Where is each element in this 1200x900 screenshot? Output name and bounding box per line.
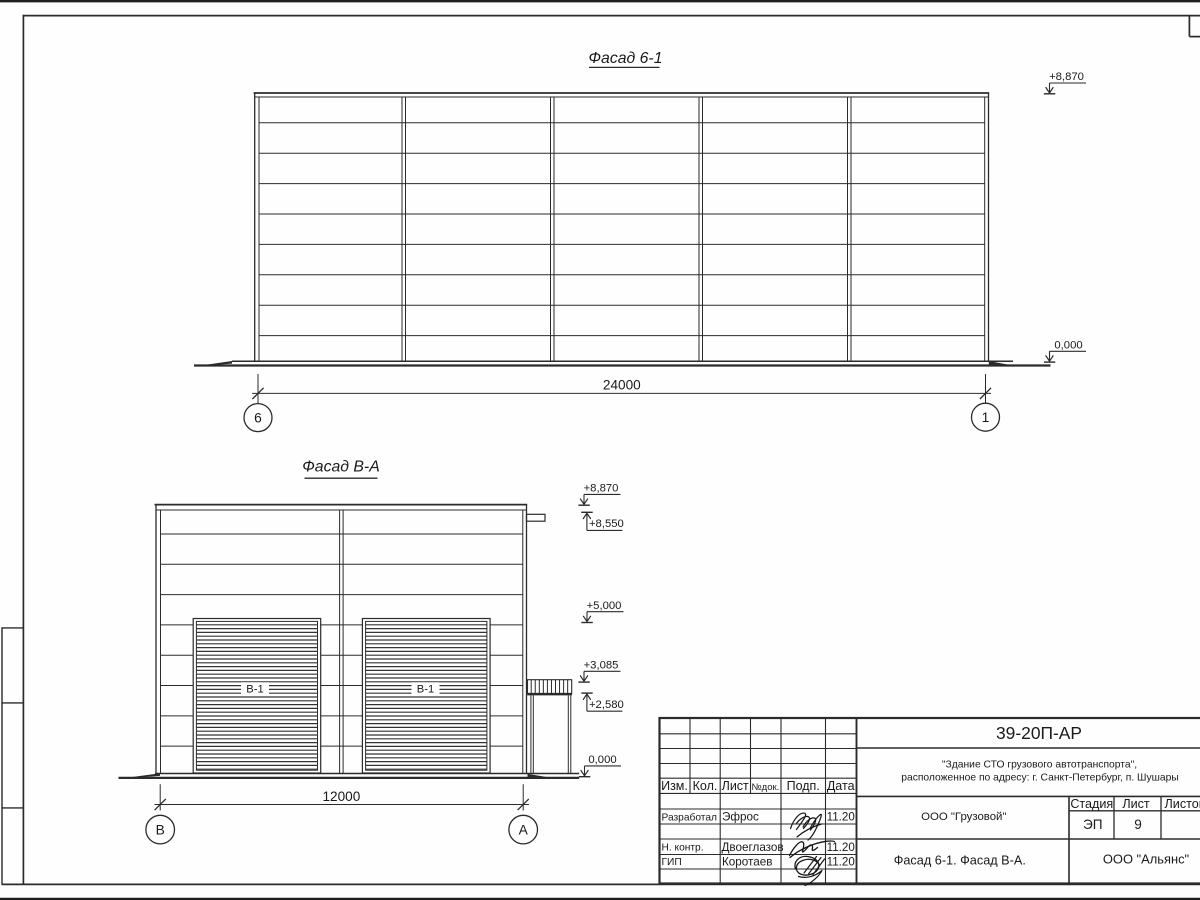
svg-text:Фасад 6-1: Фасад 6-1 — [589, 50, 663, 67]
svg-text:В-1: В-1 — [417, 683, 434, 695]
svg-text:Изм.: Изм. — [661, 779, 688, 793]
svg-text:+3,085: +3,085 — [584, 660, 619, 672]
svg-text:Коротаев: Коротаев — [722, 855, 772, 868]
svg-text:6: 6 — [254, 411, 262, 426]
svg-text:ООО "Грузовой": ООО "Грузовой" — [921, 811, 1006, 823]
svg-text:Подп.: Подп. — [787, 779, 820, 793]
svg-text:Дата: Дата — [827, 779, 855, 793]
svg-text:24000: 24000 — [603, 378, 641, 393]
svg-text:А: А — [519, 823, 529, 838]
svg-text:1: 1 — [982, 410, 990, 425]
svg-text:+8,550: +8,550 — [589, 518, 624, 530]
svg-text:Лист: Лист — [1122, 797, 1150, 811]
svg-text:Н. контр.: Н. контр. — [662, 843, 704, 854]
svg-text:Фасад В-А: Фасад В-А — [302, 458, 379, 475]
svg-text:Фасад 6-1. Фасад В-А.: Фасад 6-1. Фасад В-А. — [894, 854, 1026, 868]
svg-text:Двоеглазов: Двоеглазов — [722, 841, 784, 854]
svg-text:Лист: Лист — [722, 779, 749, 793]
svg-text:0,000: 0,000 — [1054, 340, 1082, 352]
svg-text:0,000: 0,000 — [588, 754, 616, 766]
svg-text:В: В — [156, 823, 165, 838]
svg-text:+8,870: +8,870 — [1049, 71, 1084, 83]
svg-text:11.20: 11.20 — [827, 811, 855, 824]
svg-text:Кол.: Кол. — [693, 779, 718, 793]
svg-text:ЭП: ЭП — [1083, 817, 1103, 832]
svg-text:11.20: 11.20 — [827, 855, 855, 868]
svg-text:№док.: №док. — [751, 782, 779, 793]
svg-text:Стадия: Стадия — [1070, 797, 1113, 811]
svg-text:39-20П-АР: 39-20П-АР — [996, 723, 1082, 743]
svg-text:Эфрос: Эфрос — [722, 811, 759, 824]
svg-text:Листов: Листов — [1165, 797, 1200, 811]
svg-text:+5,000: +5,000 — [587, 600, 622, 612]
svg-text:"Здание СТО грузового автотран: "Здание СТО грузового автотранспорта", — [942, 759, 1137, 770]
svg-text:+2,580: +2,580 — [589, 699, 624, 711]
svg-text:расположенное по адресу: г. Са: расположенное по адресу: г. Санкт-Петерб… — [901, 772, 1179, 784]
svg-text:11.20: 11.20 — [827, 841, 855, 854]
svg-text:9: 9 — [1134, 817, 1142, 832]
svg-text:ГИП: ГИП — [662, 857, 682, 868]
svg-text:Разработал: Разработал — [662, 811, 718, 823]
svg-text:ООО "Альянс": ООО "Альянс" — [1103, 852, 1190, 867]
svg-text:12000: 12000 — [322, 789, 360, 804]
svg-text:В-1: В-1 — [246, 683, 263, 695]
svg-text:+8,870: +8,870 — [584, 483, 619, 495]
